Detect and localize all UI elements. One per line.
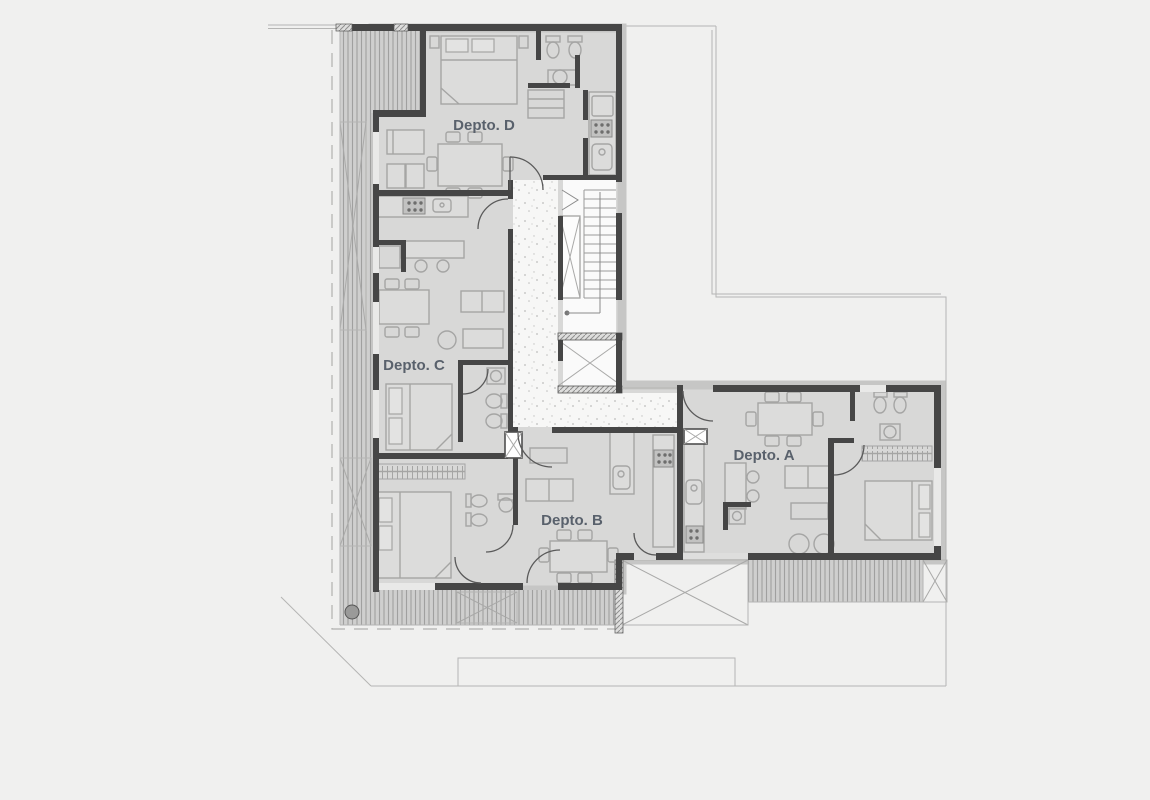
unit-d-kitchen bbox=[589, 92, 616, 175]
floor-plan: Depto. A Depto. B Depto. C Depto. D bbox=[0, 0, 1150, 800]
column-round bbox=[345, 605, 359, 619]
elevator-shaft bbox=[558, 333, 622, 393]
deck-south-b bbox=[340, 590, 620, 625]
stair-core bbox=[558, 180, 622, 393]
unit-label-d: Depto. D bbox=[453, 117, 515, 134]
unit-label-a: Depto. A bbox=[733, 447, 794, 464]
deck-south-a bbox=[748, 560, 923, 602]
floor-plan-page: Depto. A Depto. B Depto. C Depto. D bbox=[0, 0, 1150, 800]
deck-northwest bbox=[340, 31, 424, 113]
unit-label-c: Depto. C bbox=[383, 357, 445, 374]
unit-label-b: Depto. B bbox=[541, 512, 603, 529]
